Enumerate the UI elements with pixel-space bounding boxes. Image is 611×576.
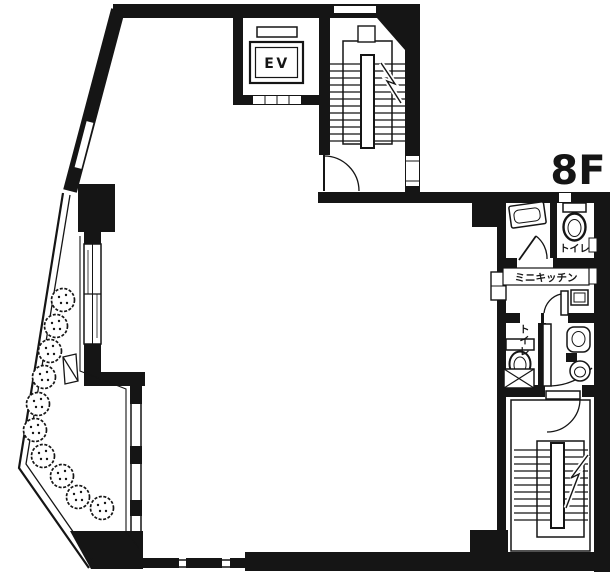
plant-shrub (32, 445, 55, 468)
stair-top-center-rail (361, 55, 374, 148)
plant-dot (39, 373, 41, 375)
plant-shrub (91, 497, 114, 520)
floor-plan-page: EV トイレ ミニキッチン (0, 0, 611, 576)
plant-dot (41, 379, 43, 381)
plant-dot (97, 504, 99, 506)
kitchen-door-leaf (561, 291, 568, 315)
lower-window-wall (130, 386, 142, 531)
bathroom (543, 324, 592, 386)
staircase-bottom (511, 391, 590, 551)
plant-dot (105, 510, 107, 512)
plant-shrub (24, 419, 47, 442)
openings-windows (78, 6, 597, 568)
left-wall-corner-block (78, 184, 115, 232)
kitchen-door-arc (544, 294, 561, 313)
toilet-lower-label: トイレ (520, 324, 530, 358)
stair-top-door-arc (324, 156, 359, 191)
right-wall-notch-1 (589, 238, 597, 252)
plant-dot (40, 458, 42, 460)
bathroom-control-box (566, 353, 577, 362)
building-walls (70, 4, 610, 572)
plant-dot (46, 371, 48, 373)
bathroom-door-leaf (543, 324, 551, 386)
plant-dot (47, 379, 49, 381)
plant-dot (41, 406, 43, 408)
plant-dot (33, 400, 35, 402)
floor-label: 8F (550, 148, 605, 194)
plant-dot (53, 353, 55, 355)
plant-shrub (51, 465, 74, 488)
washroom-toilet-divider (550, 203, 557, 260)
plant-dot (65, 478, 67, 480)
plant-dot (37, 424, 39, 426)
plant-shrub (67, 486, 90, 509)
toilet-lower-room: トイレ (504, 324, 534, 388)
plant-dot (57, 472, 59, 474)
plant-shrub (52, 289, 75, 312)
floor-plan-svg: EV トイレ ミニキッチン (0, 0, 611, 576)
right-wall-notch-2 (589, 268, 597, 284)
plant-dot (58, 296, 60, 298)
mini-kitchen-label: ミニキッチン (515, 272, 578, 284)
elevator-stair-divider-wall (319, 8, 330, 155)
bottom-wall (245, 552, 609, 571)
toilet-upper-tank (563, 203, 586, 212)
stair-bottom-door-leaf (546, 391, 580, 399)
plant-dot (99, 510, 101, 512)
annex-left-block-top (472, 203, 498, 227)
plant-dot (47, 353, 49, 355)
plant-dot (104, 502, 106, 504)
left-sliding-window (84, 244, 101, 344)
left-wall-jog (84, 372, 145, 386)
elevator-counterweight (257, 27, 297, 37)
plant-dot (64, 470, 66, 472)
toilet-upper-label: トイレ (560, 243, 590, 255)
staircase-top (324, 26, 405, 191)
plant-dot (66, 302, 68, 304)
plant-dot (53, 328, 55, 330)
plant-dot (45, 347, 47, 349)
plant-dot (32, 432, 34, 434)
plant-dot (80, 491, 82, 493)
washroom-door-arc (536, 236, 547, 259)
plant-dot (58, 320, 60, 322)
plant-shrub (39, 340, 62, 363)
toilet-upper-window (559, 193, 571, 202)
plant-dot (30, 426, 32, 428)
elevator: EV (250, 27, 303, 83)
plant-dot (35, 406, 37, 408)
toilet-lower-door-gap (520, 313, 541, 323)
left-window-wall-bottom-seg (84, 344, 101, 374)
plant-dot (46, 458, 48, 460)
left-window-wall-top-seg (84, 228, 101, 244)
plant-shrub (45, 315, 68, 338)
plant-dot (60, 302, 62, 304)
plant-dot (40, 398, 42, 400)
bottom-window-wall (143, 558, 246, 568)
plant-dot (38, 432, 40, 434)
stair-bottom-door-arc (547, 399, 580, 432)
plant-shrub (27, 393, 50, 416)
plant-dot (59, 478, 61, 480)
pipe-shaft (504, 369, 534, 388)
mini-kitchen: ミニキッチン (503, 268, 589, 315)
plant-dot (73, 493, 75, 495)
washbasin (509, 202, 547, 229)
balcony-step-symbol (63, 354, 78, 384)
plant-dot (52, 345, 54, 347)
plant-dot (81, 499, 83, 501)
toilet-upper-room: トイレ (560, 203, 590, 255)
plant-dot (65, 294, 67, 296)
washroom-door-leaf (519, 236, 536, 260)
plant-dot (38, 452, 40, 454)
elevator-label: EV (264, 56, 289, 72)
bottom-left-wall-chunk (70, 531, 143, 569)
elevator-left-wall (233, 8, 243, 105)
plant-dot (75, 499, 77, 501)
plant-dot (45, 450, 47, 452)
plant-dot (59, 328, 61, 330)
washroom (509, 202, 547, 260)
plant-shrub (33, 366, 56, 389)
plant-dot (51, 322, 53, 324)
stair-top-landing-box (358, 26, 375, 42)
bathroom-fixture-bottom (570, 361, 590, 381)
top-wall-window (334, 6, 376, 13)
stair-bottom-center-rail (551, 443, 564, 528)
bathroom-fixture-top (567, 327, 590, 352)
